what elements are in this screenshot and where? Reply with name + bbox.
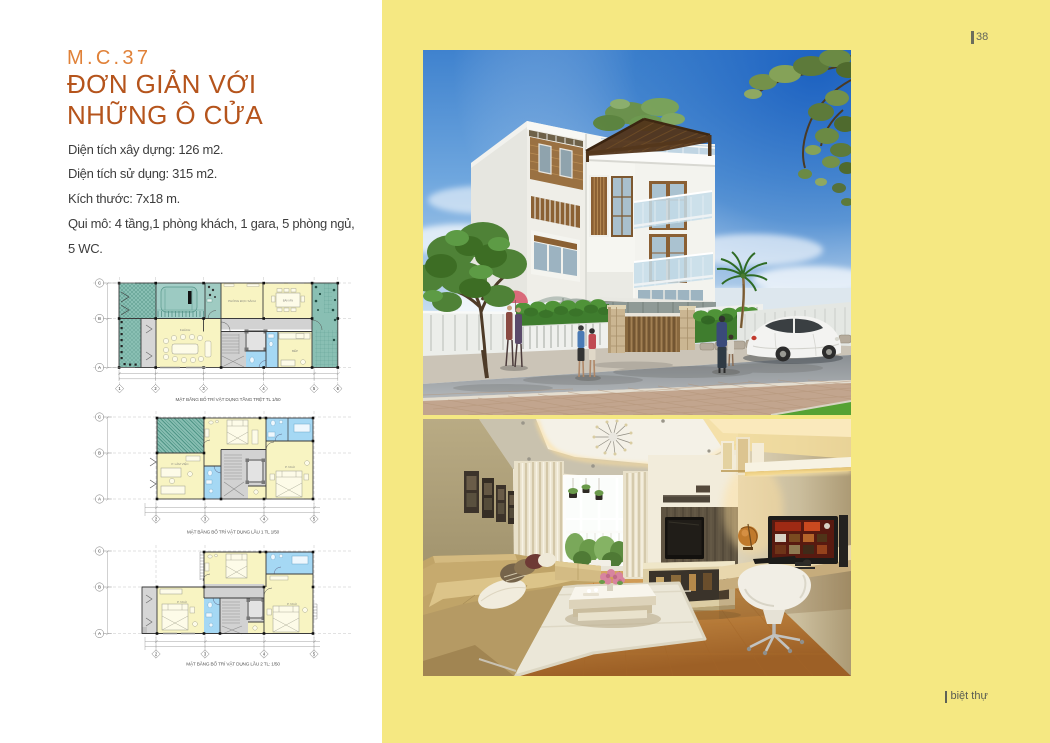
- svg-text:B: B: [98, 451, 101, 456]
- svg-text:P. LÀM VIỆC: P. LÀM VIỆC: [171, 461, 189, 466]
- svg-text:A: A: [98, 365, 101, 370]
- svg-text:MẶT BẰNG BỐ TRÍ VẬT DỤNG LẦU 2: MẶT BẰNG BỐ TRÍ VẬT DỤNG LẦU 2 TL: 1/50: [186, 660, 280, 667]
- svg-text:1: 1: [118, 386, 121, 391]
- svg-text:2: 2: [155, 517, 158, 522]
- svg-text:A: A: [98, 631, 101, 636]
- svg-text:5: 5: [313, 652, 316, 657]
- svg-text:P. NGỦ: P. NGỦ: [285, 464, 295, 469]
- svg-text:4: 4: [263, 517, 266, 522]
- svg-text:BẾP: BẾP: [292, 348, 298, 353]
- svg-text:2: 2: [154, 386, 157, 391]
- svg-text:MẶT BẰNG BỐ TRÍ VẬT DỤNG TẦNG: MẶT BẰNG BỐ TRÍ VẬT DỤNG TẦNG TRỆT TL 1/…: [176, 395, 281, 402]
- svg-text:B: B: [98, 316, 101, 321]
- svg-text:B: B: [98, 585, 101, 590]
- svg-text:C: C: [98, 549, 101, 554]
- svg-text:PHÒNG ĐỌC SÁCH: PHÒNG ĐỌC SÁCH: [228, 298, 256, 303]
- svg-text:C: C: [98, 281, 101, 286]
- svg-text:P. NGỦ: P. NGỦ: [177, 599, 187, 604]
- svg-text:6: 6: [337, 386, 340, 391]
- svg-text:P. NGỦ: P. NGỦ: [287, 601, 297, 606]
- svg-text:3: 3: [204, 652, 207, 657]
- svg-text:2: 2: [155, 652, 158, 657]
- svg-text:MẶT BẰNG BỐ TRÍ VẬT DỤNG LẦU 1: MẶT BẰNG BỐ TRÍ VẬT DỤNG LẦU 1 TL 1/50: [187, 528, 280, 535]
- svg-text:C: C: [98, 415, 101, 420]
- svg-text:3: 3: [204, 517, 207, 522]
- svg-text:3: 3: [202, 386, 205, 391]
- svg-text:5: 5: [313, 386, 316, 391]
- svg-text:4: 4: [263, 652, 266, 657]
- svg-text:5: 5: [313, 517, 316, 522]
- svg-text:4: 4: [262, 386, 265, 391]
- svg-text:A: A: [98, 497, 101, 502]
- svg-text:BÀN ĂN: BÀN ĂN: [283, 299, 293, 303]
- svg-text:KHÁCH: KHÁCH: [180, 328, 191, 332]
